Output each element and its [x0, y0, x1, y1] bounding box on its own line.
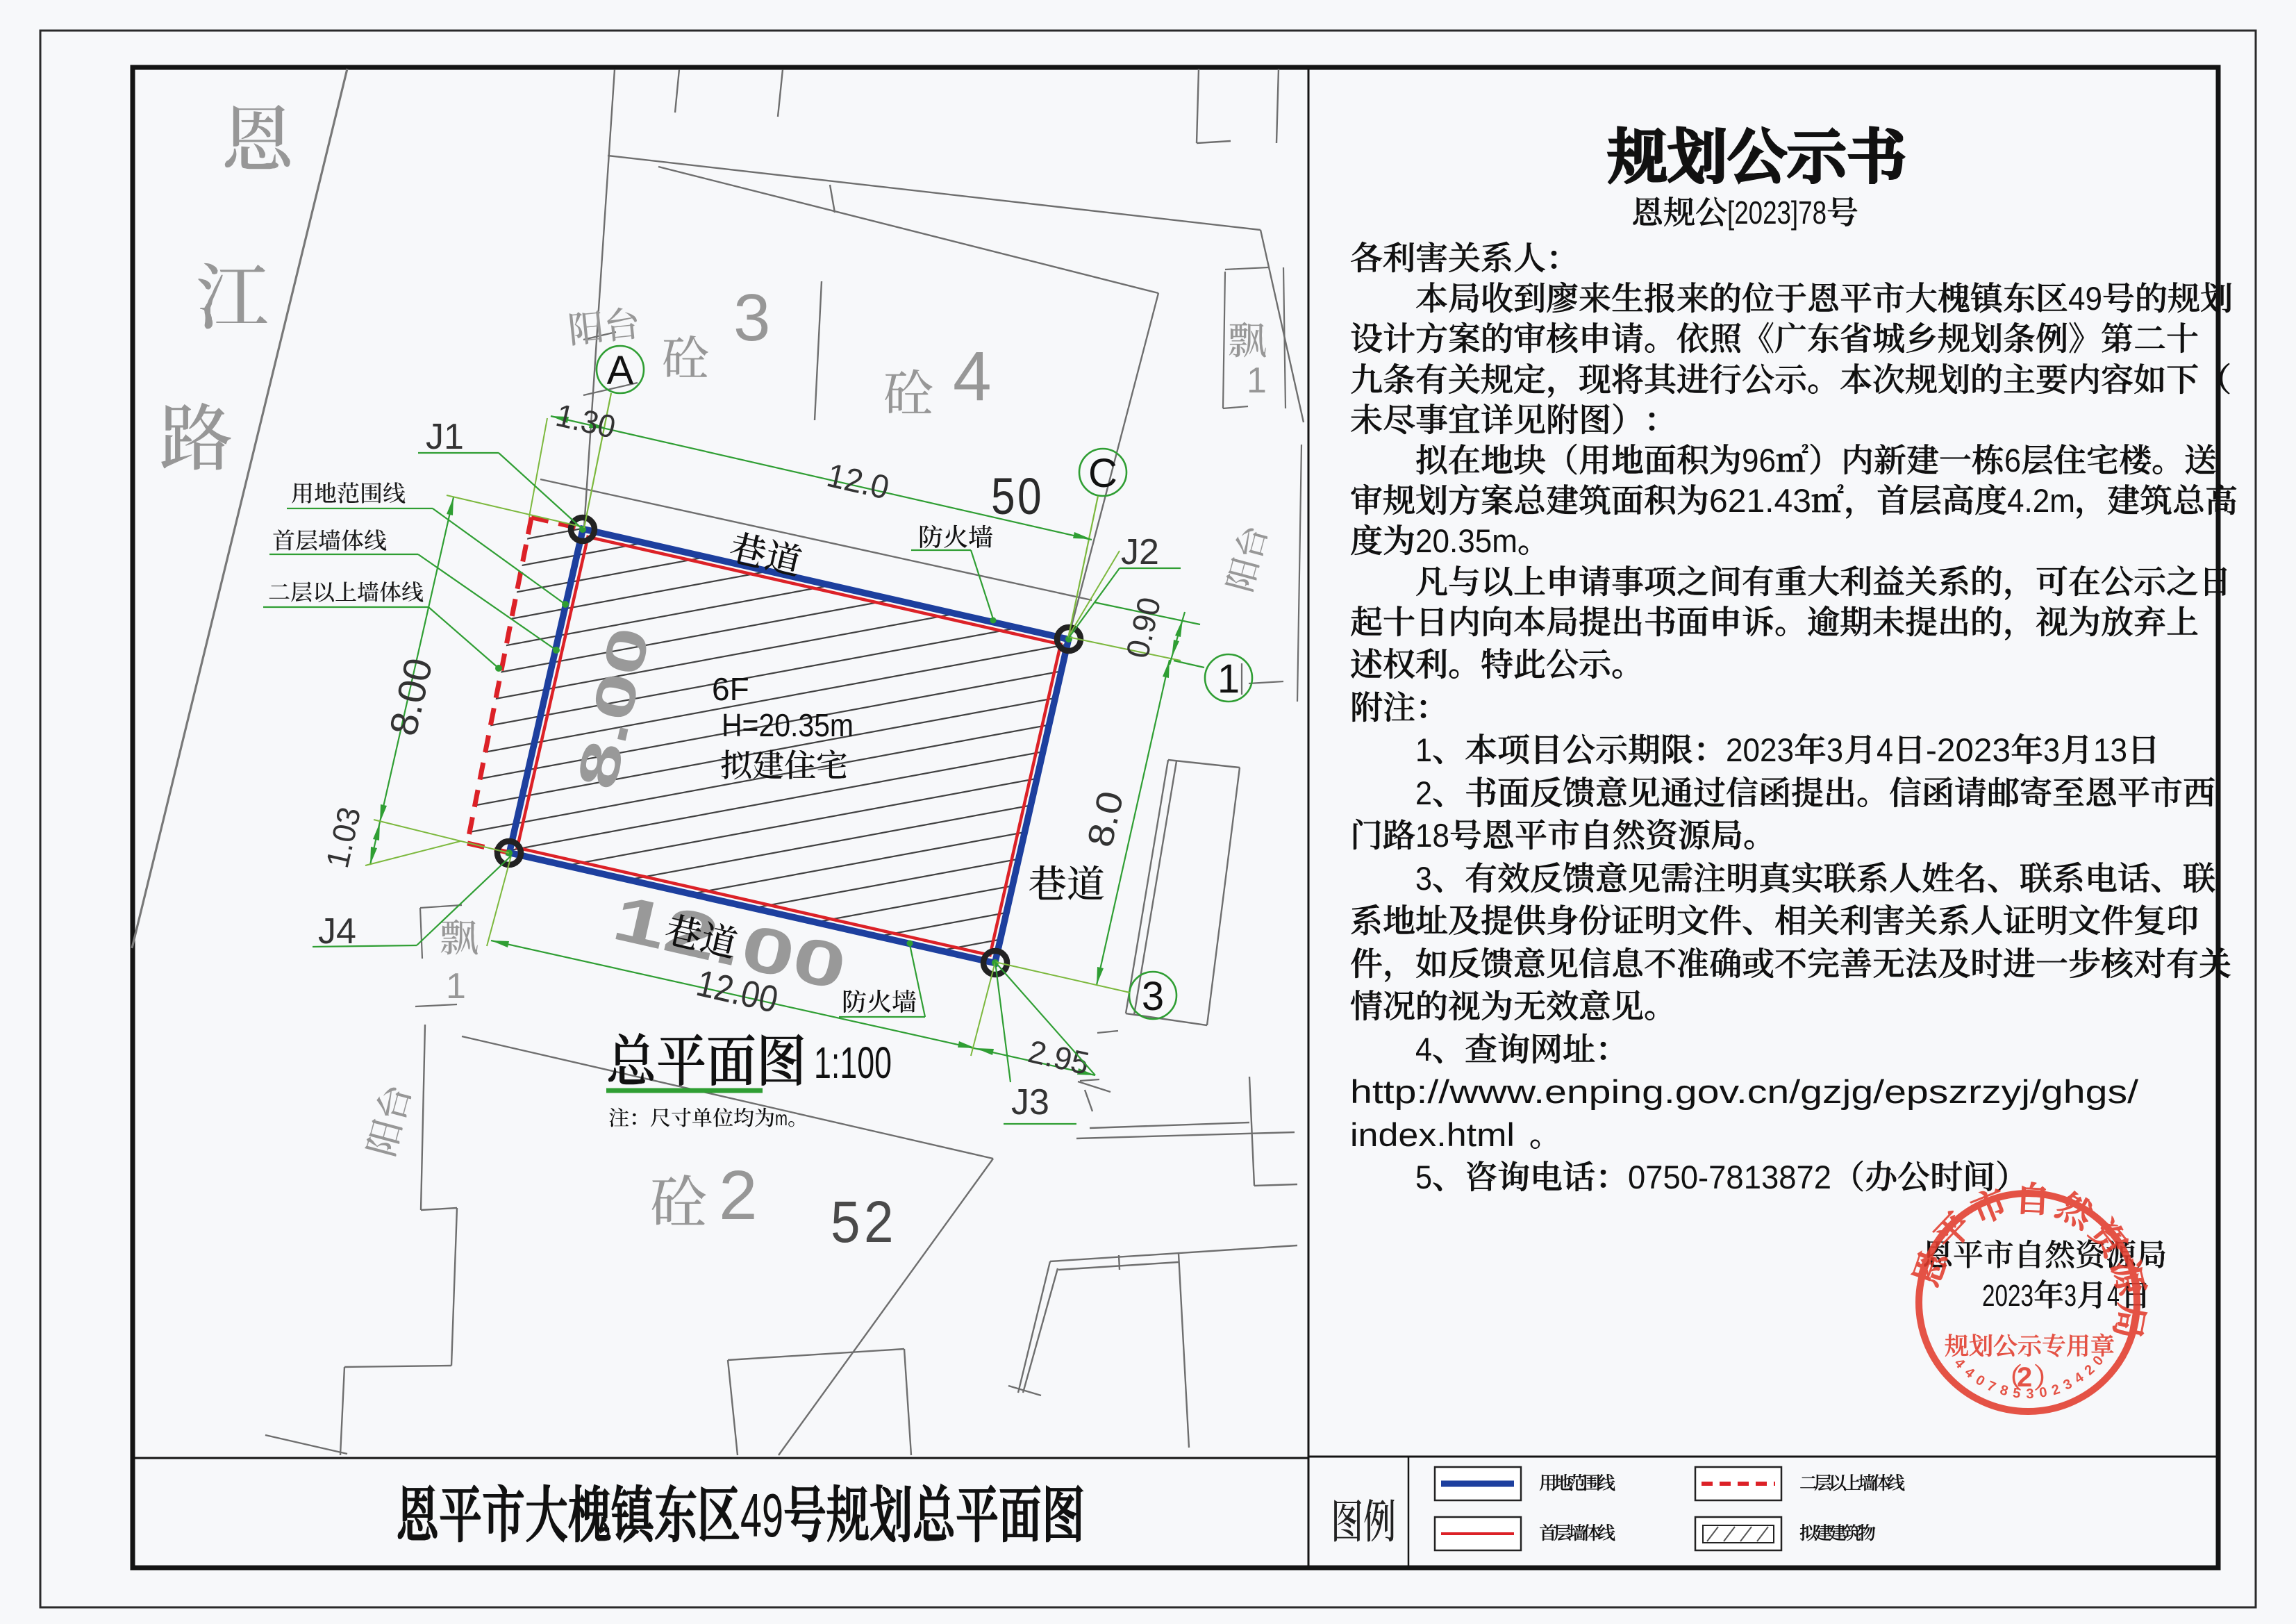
svg-text:2023: 2023	[1982, 1279, 2033, 1313]
svg-text:13: 13	[2093, 731, 2127, 768]
svg-text:3: 3	[1827, 731, 1843, 768]
svg-text:3: 3	[2064, 1279, 2077, 1313]
svg-text:3: 3	[1415, 860, 1432, 897]
svg-text:49: 49	[740, 1482, 783, 1550]
svg-text:52: 52	[831, 1189, 897, 1254]
svg-text:J1: J1	[426, 417, 464, 457]
svg-text:2: 2	[719, 1157, 758, 1234]
svg-text:3: 3	[1142, 974, 1164, 1019]
svg-text:J3: J3	[1011, 1082, 1049, 1122]
svg-text:3: 3	[733, 281, 770, 355]
svg-text:6F: 6F	[712, 671, 749, 707]
svg-text:1: 1	[1247, 361, 1267, 401]
svg-text:m: m	[775, 1107, 788, 1130]
svg-text:96: 96	[1742, 442, 1776, 479]
svg-text:6: 6	[2004, 442, 2021, 479]
svg-text:0750-7813872: 0750-7813872	[1628, 1159, 1831, 1195]
svg-text:4: 4	[953, 338, 992, 415]
svg-text:J2: J2	[1121, 532, 1159, 572]
svg-text:621.43: 621.43	[1709, 482, 1811, 519]
svg-text:5: 5	[1415, 1159, 1432, 1195]
svg-text:49: 49	[2068, 280, 2102, 317]
svg-text:4.2m: 4.2m	[2007, 482, 2075, 519]
svg-text:18: 18	[1415, 817, 1449, 854]
svg-text:1:100: 1:100	[814, 1038, 892, 1088]
svg-text:-2023: -2023	[1926, 731, 2011, 768]
svg-text:1: 1	[1415, 731, 1432, 768]
svg-text:index.html: index.html	[1350, 1116, 1515, 1153]
svg-text:1: 1	[446, 966, 466, 1006]
svg-text:4: 4	[1877, 731, 1893, 768]
svg-text:2: 2	[1415, 774, 1432, 811]
svg-text:A: A	[607, 348, 634, 393]
svg-text:3: 3	[2026, 1386, 2034, 1402]
svg-text:4: 4	[1415, 1031, 1432, 1068]
svg-text:2023: 2023	[1726, 731, 1794, 768]
svg-text:[2023]78: [2023]78	[1727, 194, 1827, 231]
svg-text:http://www.enping.gov.cn/gzjg/: http://www.enping.gov.cn/gzjg/epszrzyj/g…	[1350, 1073, 2139, 1110]
svg-text:H=20.35m: H=20.35m	[722, 707, 854, 743]
svg-text:20.35m: 20.35m	[1415, 522, 1517, 559]
svg-text:1: 1	[1217, 656, 1240, 702]
svg-text:C: C	[1088, 451, 1117, 496]
svg-text:3: 3	[2043, 731, 2060, 768]
svg-text:50: 50	[991, 467, 1044, 525]
